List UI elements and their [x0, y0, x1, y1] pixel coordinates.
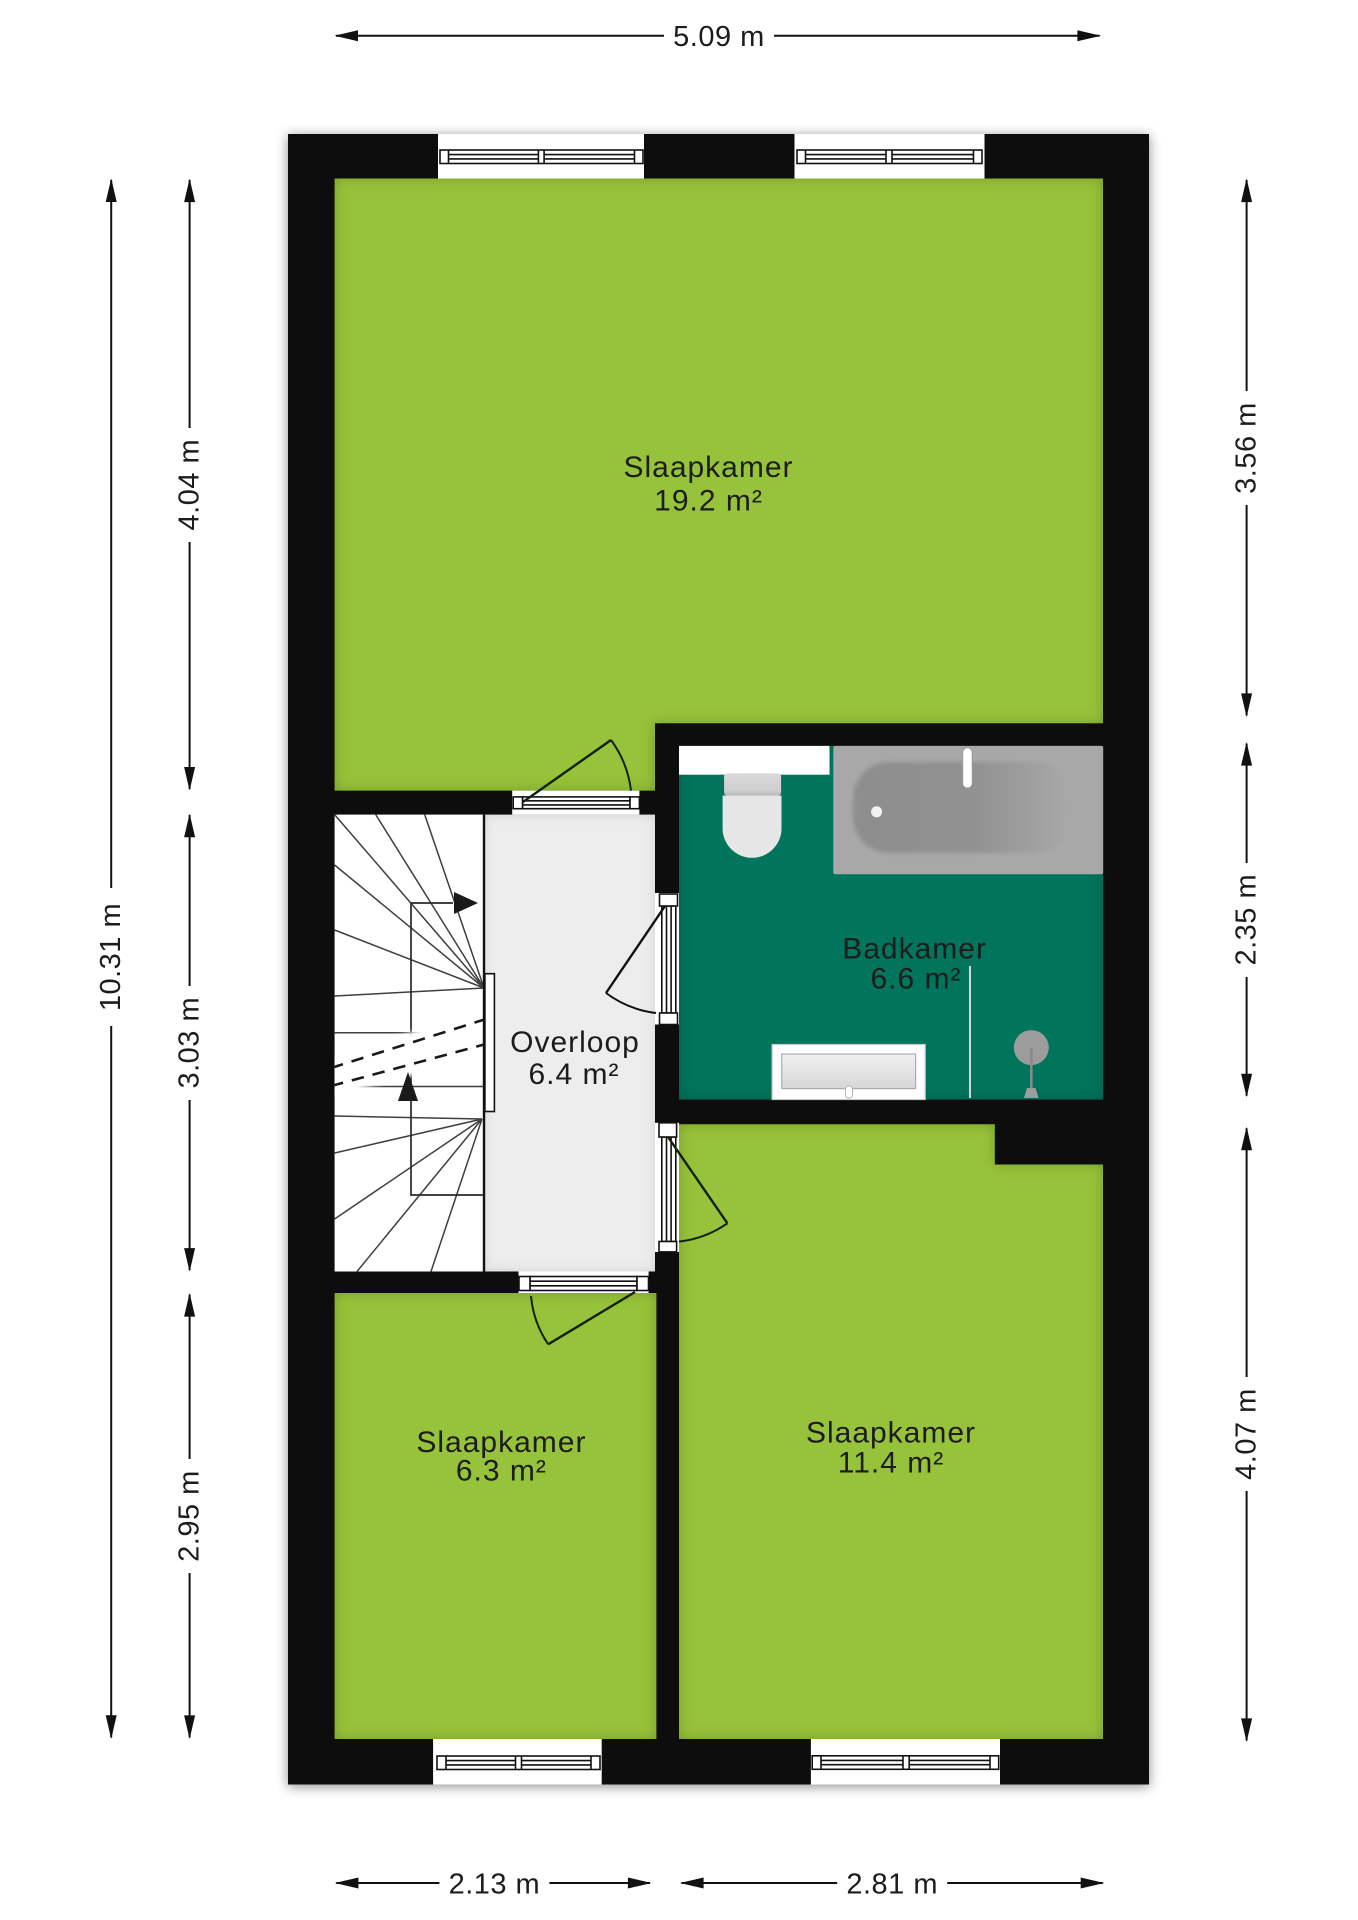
- svg-text:2.35 m: 2.35 m: [1231, 874, 1263, 966]
- svg-text:6.3 m²: 6.3 m²: [456, 1455, 547, 1488]
- svg-text:11.4 m²: 11.4 m²: [838, 1447, 944, 1480]
- svg-text:10.31 m: 10.31 m: [95, 903, 127, 1011]
- svg-text:3.03 m: 3.03 m: [174, 997, 206, 1089]
- svg-text:Badkamer: Badkamer: [842, 933, 987, 966]
- svg-text:2.13 m: 2.13 m: [449, 1868, 541, 1900]
- svg-text:5.09 m: 5.09 m: [673, 21, 765, 53]
- svg-text:2.95 m: 2.95 m: [174, 1470, 206, 1562]
- svg-text:2.81 m: 2.81 m: [846, 1868, 938, 1900]
- svg-text:Slaapkamer: Slaapkamer: [623, 451, 793, 484]
- svg-text:19.2 m²: 19.2 m²: [654, 485, 763, 518]
- svg-text:Overloop: Overloop: [510, 1026, 640, 1059]
- svg-text:4.07 m: 4.07 m: [1231, 1388, 1263, 1480]
- svg-text:3.56 m: 3.56 m: [1231, 402, 1263, 494]
- svg-text:6.6 m²: 6.6 m²: [870, 963, 961, 996]
- svg-text:4.04 m: 4.04 m: [174, 439, 206, 531]
- svg-text:6.4 m²: 6.4 m²: [528, 1058, 619, 1091]
- svg-text:Slaapkamer: Slaapkamer: [806, 1417, 976, 1450]
